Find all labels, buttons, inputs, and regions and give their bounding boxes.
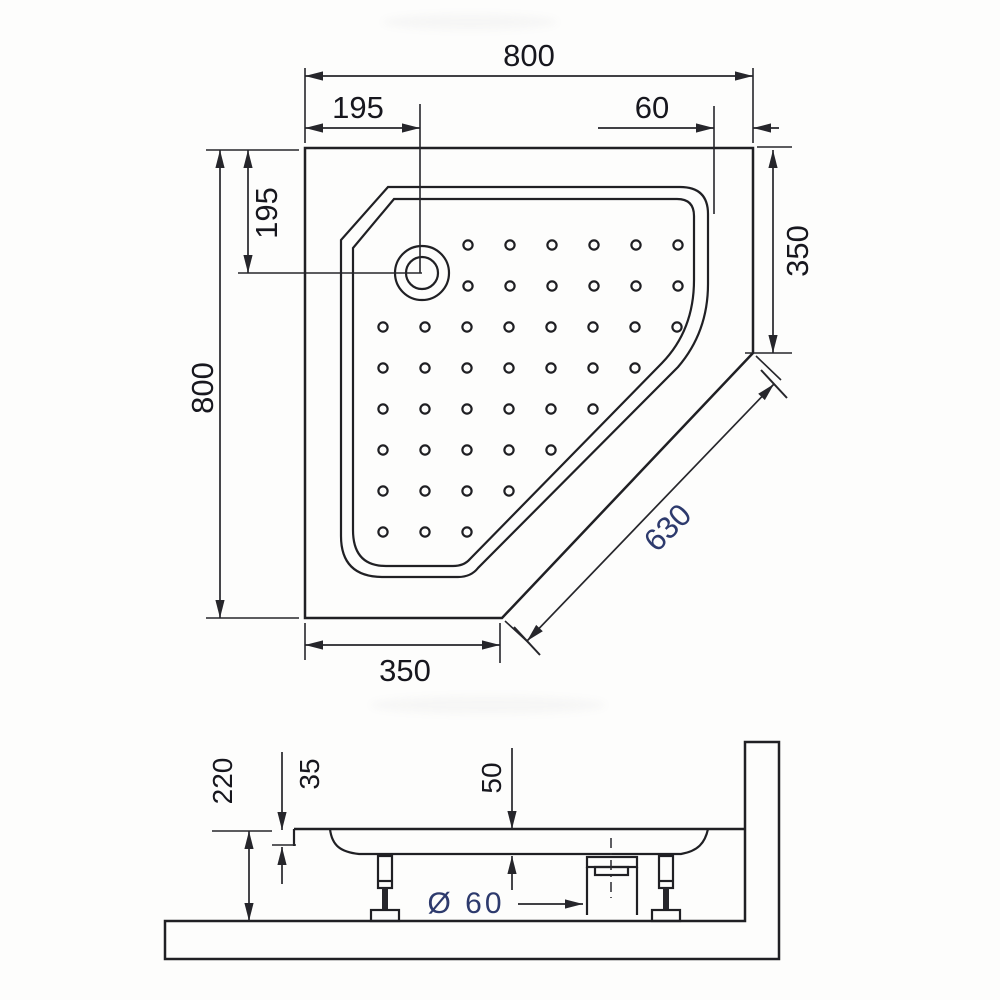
dim-drain-offset-left: 195 [238, 150, 422, 273]
wall-and-floor [165, 742, 779, 959]
dim-right-edge: 350 [745, 147, 815, 353]
foot-right [652, 856, 680, 921]
dim-basin-depth: 50 [476, 748, 512, 890]
outer-contour [305, 148, 753, 618]
dim-drain-offset-top: 195 [305, 90, 420, 273]
drain-trap [587, 838, 637, 915]
dim-label-rim-drop: 35 [294, 758, 325, 789]
side-view: 220 35 50 Ø 60 [165, 742, 779, 959]
foot-left [371, 856, 399, 921]
dim-label-diagonal-cut: 630 [637, 497, 698, 558]
watermark-smudges [370, 14, 606, 714]
dim-label-right-edge: 350 [780, 225, 815, 277]
dim-label-rim-to-edge: 60 [635, 90, 669, 125]
dim-label-bottom-edge: 350 [379, 653, 431, 688]
dim-total-height: 220 [207, 758, 272, 921]
dim-diagonal-cut: 630 [505, 356, 787, 655]
dim-label-basin-depth: 50 [476, 762, 507, 793]
dim-label-overall-width: 800 [503, 38, 555, 73]
dim-label-overall-height: 800 [185, 362, 220, 414]
dim-label-total-height: 220 [207, 758, 238, 805]
dim-label-drain-diameter: Ø 60 [427, 887, 504, 920]
dim-label-drain-offset-top: 195 [332, 90, 384, 125]
dim-label-drain-offset-left: 195 [249, 187, 284, 239]
plan-view: 800 195 60 800 195 [185, 38, 815, 688]
drawing-canvas: 800 195 60 800 195 [0, 0, 1000, 1000]
dim-rim-drop: 35 [282, 752, 325, 884]
basin-profile [330, 829, 708, 854]
dim-bottom-edge: 350 [305, 623, 500, 688]
dim-drain-diameter: Ø 60 [427, 887, 583, 920]
drawing-page: 800 195 60 800 195 [0, 0, 1000, 1000]
